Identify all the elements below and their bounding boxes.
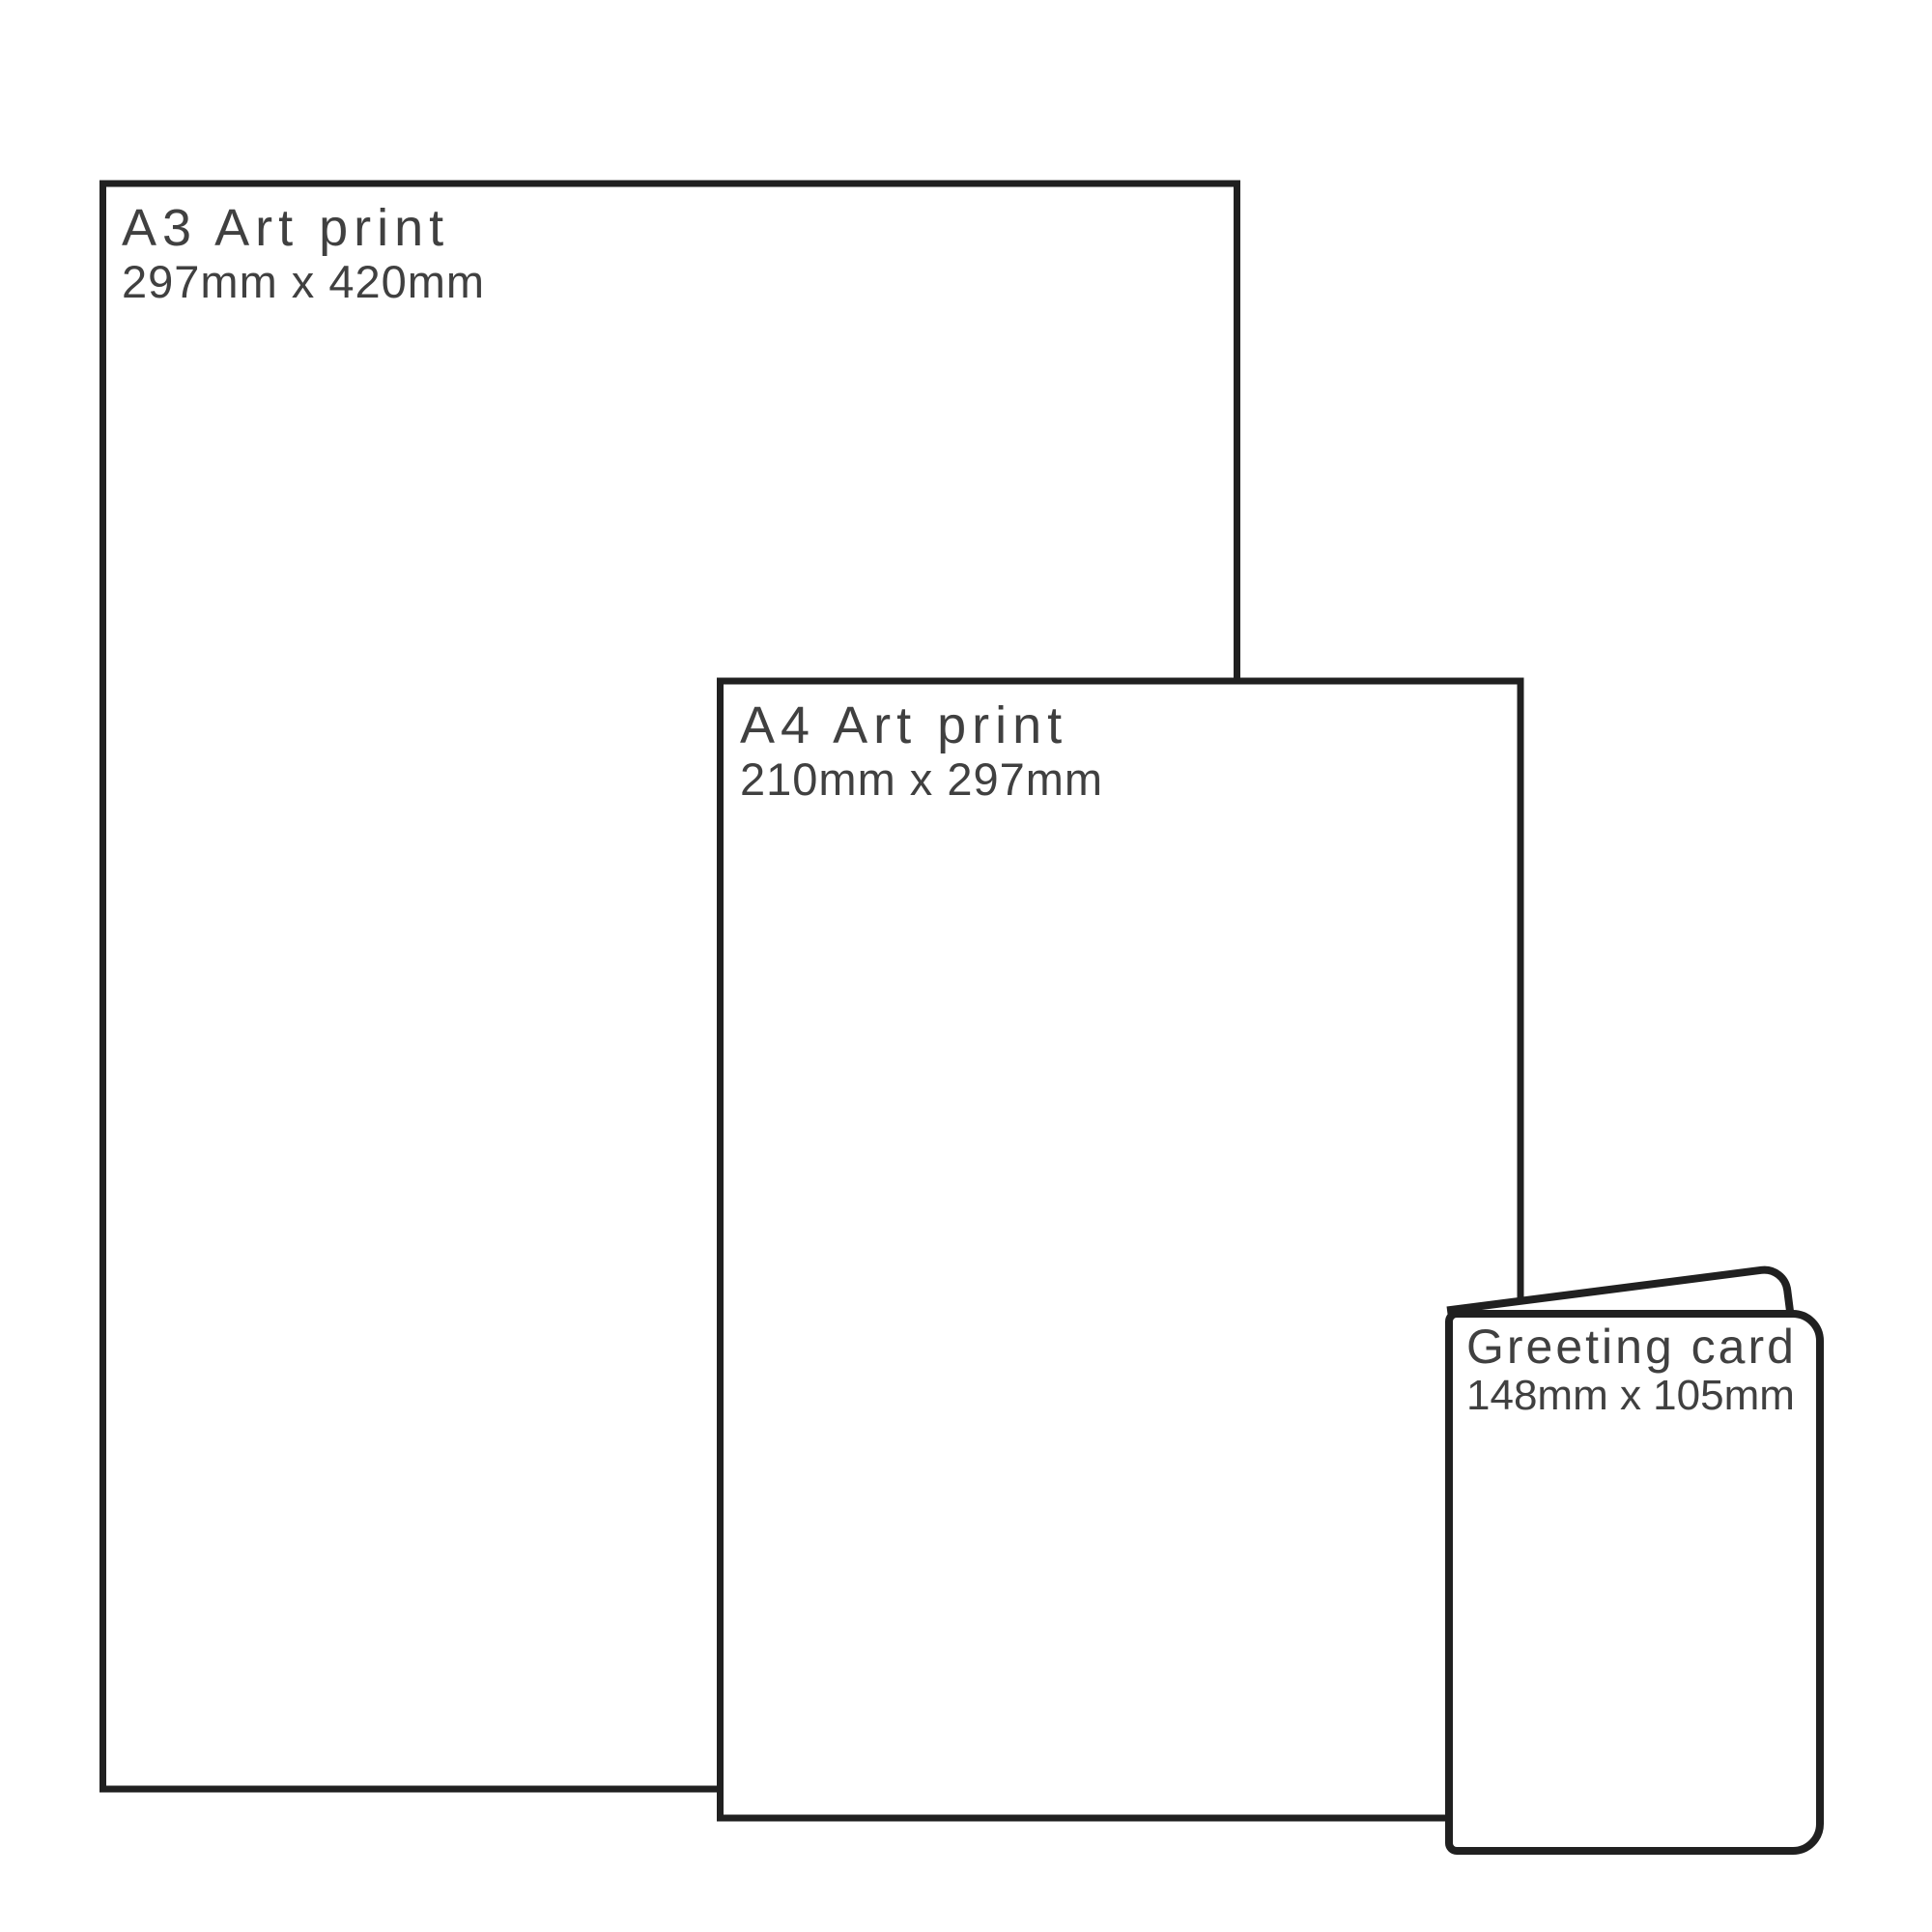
a4-print-outline (721, 681, 1521, 1818)
greeting-card-title: Greeting card (1466, 1321, 1797, 1373)
a4-print-size: 210mm x 297mm (740, 753, 1103, 806)
a3-print-size: 297mm x 420mm (122, 256, 485, 308)
a3-print-title: A3 Art print (122, 200, 485, 256)
a4-print-title: A4 Art print (740, 697, 1103, 753)
size-comparison-diagram: A3 Art print 297mm x 420mm A4 Art print … (0, 0, 1932, 1932)
greeting-card-label: Greeting card 148mm x 105mm (1466, 1321, 1797, 1419)
greeting-card-size: 148mm x 105mm (1466, 1373, 1797, 1419)
a3-print-label: A3 Art print 297mm x 420mm (122, 200, 485, 308)
a4-print-label: A4 Art print 210mm x 297mm (740, 697, 1103, 806)
